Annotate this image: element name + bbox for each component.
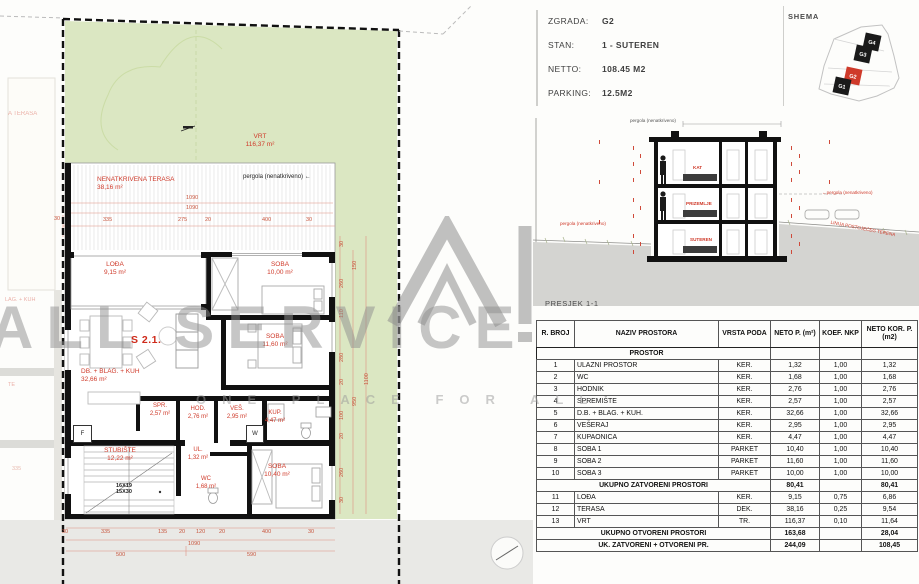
site-plan-diagram: G4 G3 G2 G1 bbox=[784, 6, 919, 110]
table-cell: 1,00 bbox=[820, 444, 862, 456]
room-name: UL. bbox=[193, 447, 202, 453]
table-cell bbox=[771, 348, 820, 360]
dim: 150 bbox=[352, 261, 358, 270]
room-label-ul: UL. 1,32 m² bbox=[178, 447, 218, 462]
table-row: 13VRTTR.116,370,1011,64 bbox=[537, 516, 918, 528]
info-row: NETTO: bbox=[548, 64, 581, 74]
neighbor-label: LAG. + KUH bbox=[5, 297, 35, 304]
subtotal-neto: 163,68 bbox=[771, 528, 820, 540]
subtotal-kor: 28,04 bbox=[862, 528, 918, 540]
table-cell: 32,66 bbox=[771, 408, 820, 420]
room-name: SOBA bbox=[268, 463, 286, 470]
table-cell: 0,10 bbox=[820, 516, 862, 528]
table-cell bbox=[820, 348, 862, 360]
table-cell: 3 bbox=[537, 384, 575, 396]
table-cell: 2,57 bbox=[771, 396, 820, 408]
table-cell: 10,00 bbox=[771, 468, 820, 480]
col-header: VRSTA PODA bbox=[719, 321, 771, 348]
dim: 30 bbox=[62, 529, 68, 535]
room-area: 38,16 m² bbox=[97, 184, 123, 191]
section-pergola-top-label: pergola (nenatkriveno) bbox=[630, 118, 676, 123]
info-label: PARKING: bbox=[548, 88, 591, 98]
appliance-washer: W bbox=[246, 425, 264, 443]
room-name: SOBA bbox=[266, 333, 284, 340]
drawing-sheet: VRT 116,37 m² NENATKRIVENA TERASA 38,16 … bbox=[0, 0, 919, 584]
room-name: DB. + BLAG. + KUH bbox=[81, 368, 140, 375]
table-cell: 1,00 bbox=[820, 384, 862, 396]
dim: 400 bbox=[262, 529, 271, 535]
table-cell: 9,15 bbox=[771, 492, 820, 504]
table-cell: 4,47 bbox=[771, 432, 820, 444]
dim: 30 bbox=[54, 216, 60, 222]
room-label-loda: LOĐA 9,15 m² bbox=[90, 261, 140, 277]
dim: 260 bbox=[339, 279, 345, 288]
table-cell: LOĐA bbox=[575, 492, 719, 504]
appliance-fridge: F bbox=[73, 425, 92, 443]
table-cell: SOBA 2 bbox=[575, 456, 719, 468]
table-cell: 2,76 bbox=[771, 384, 820, 396]
table-cell: 11,60 bbox=[862, 456, 918, 468]
table-group-label: PROSTOR bbox=[575, 348, 719, 360]
table-row: 7KUPAONICAKER.4,471,004,47 bbox=[537, 432, 918, 444]
table-cell: 12 bbox=[537, 504, 575, 516]
table-cell: KER. bbox=[719, 420, 771, 432]
table-row: 9SOBA 2PARKET11,601,0011,60 bbox=[537, 456, 918, 468]
room-area: 1,68 m² bbox=[196, 484, 216, 490]
table-cell: 6,86 bbox=[862, 492, 918, 504]
table-cell: 1,68 bbox=[771, 372, 820, 384]
stair-tread-note: 15X30 bbox=[116, 489, 132, 495]
room-label-hod: HOD. 2,76 m² bbox=[176, 406, 220, 421]
room-name: WC bbox=[201, 476, 211, 482]
section-pergola-right-label: ←pergola (nenatkriveno) bbox=[822, 190, 873, 195]
table-cell: KUPAONICA bbox=[575, 432, 719, 444]
table-cell: PARKET bbox=[719, 444, 771, 456]
table-cell: 10,40 bbox=[862, 444, 918, 456]
table-cell: 32,66 bbox=[862, 408, 918, 420]
info-value: 108.45 M2 bbox=[602, 64, 646, 74]
table-cell: KER. bbox=[719, 372, 771, 384]
table-row: 4SPREMIŠTEKER.2,571,002,57 bbox=[537, 396, 918, 408]
section-floor-suteren: SUTEREN bbox=[690, 237, 712, 242]
section-pergola-bottom-label: pergola (nenatkriveno) bbox=[560, 221, 606, 226]
info-label: ZGRADA: bbox=[548, 16, 589, 26]
info-block: ZGRADA: G2 STAN: 1 - SUTEREN NETTO: 108.… bbox=[536, 10, 778, 106]
table-cell bbox=[820, 528, 862, 540]
dim: 20 bbox=[339, 379, 345, 385]
section-caption: PRESJEK 1-1 bbox=[545, 299, 599, 308]
total-neto: 244,09 bbox=[771, 540, 820, 552]
dim: 335 bbox=[12, 466, 21, 472]
dim: 280 bbox=[339, 353, 345, 362]
room-area: 4,47 m² bbox=[265, 418, 285, 424]
room-label-stubiste: STUBIŠTE 12,22 m² bbox=[90, 447, 150, 463]
table-cell: 1,00 bbox=[820, 468, 862, 480]
table-cell: WC bbox=[575, 372, 719, 384]
room-area: 10,00 m² bbox=[267, 269, 293, 276]
table-cell: 8 bbox=[537, 444, 575, 456]
table-cell: SOBA 1 bbox=[575, 444, 719, 456]
table-cell: TERASA bbox=[575, 504, 719, 516]
table-row: 11LOĐAKER.9,150,756,86 bbox=[537, 492, 918, 504]
stair-note: 16X19 15X30 bbox=[116, 483, 132, 495]
table-cell: PARKET bbox=[719, 456, 771, 468]
room-name: KUP. bbox=[268, 410, 281, 416]
dim: 20 bbox=[339, 433, 345, 439]
room-name: SOBA bbox=[271, 261, 289, 268]
room-area: 10,40 m² bbox=[264, 471, 290, 478]
table-row: 8SOBA 1PARKET10,401,0010,40 bbox=[537, 444, 918, 456]
room-label-vrt: VRT 116,37 m² bbox=[230, 133, 290, 149]
room-area: 1,32 m² bbox=[188, 455, 208, 461]
room-name: NENATKRIVENA TERASA bbox=[97, 176, 174, 183]
dim: 950 bbox=[352, 397, 358, 406]
col-header: NETO P. (m²) bbox=[771, 321, 820, 348]
pergola-label: pergola (nenatkriveno) ← bbox=[243, 174, 311, 180]
table-cell: 10,40 bbox=[771, 444, 820, 456]
dim: 335 bbox=[101, 529, 110, 535]
table-cell: 1,32 bbox=[862, 360, 918, 372]
dim: 20 bbox=[205, 217, 211, 223]
dim: 400 bbox=[262, 217, 271, 223]
table-subtotal-row: UKUPNO ZATVORENI PROSTORI 80,41 80,41 bbox=[537, 480, 918, 492]
table-cell: 116,37 bbox=[771, 516, 820, 528]
dim: 1090 bbox=[186, 195, 198, 201]
table-cell: 1,00 bbox=[820, 360, 862, 372]
table-cell bbox=[719, 348, 771, 360]
table-cell bbox=[537, 348, 575, 360]
table-cell: 1,00 bbox=[820, 396, 862, 408]
area-table: R. BROJ NAZIV PROSTORA VRSTA PODA NETO P… bbox=[536, 320, 917, 552]
col-header: KOEF. NKP bbox=[820, 321, 862, 348]
room-area: 2,95 m² bbox=[227, 414, 247, 420]
neighbor-label: TE bbox=[8, 382, 15, 389]
table-cell: 1,00 bbox=[820, 372, 862, 384]
floor-plan-drawing bbox=[0, 0, 533, 584]
dim: 20 bbox=[179, 529, 185, 535]
table-cell bbox=[820, 540, 862, 552]
subtotal-label: UKUPNO OTVORENI PROSTORI bbox=[537, 528, 771, 540]
info-label: NETTO: bbox=[548, 64, 581, 74]
info-row: PARKING: bbox=[548, 88, 591, 98]
section-floor-prizemlje: PRIZEMLJE bbox=[686, 201, 712, 206]
table-cell: 4 bbox=[537, 396, 575, 408]
table-cell: 13 bbox=[537, 516, 575, 528]
dim: 1090 bbox=[188, 541, 200, 547]
table-cell: KER. bbox=[719, 384, 771, 396]
room-name: LOĐA bbox=[106, 261, 124, 268]
table-cell: 10,00 bbox=[862, 468, 918, 480]
table-cell: VRT bbox=[575, 516, 719, 528]
table-cell: 1,00 bbox=[820, 432, 862, 444]
unit-label: S 2.1. bbox=[131, 334, 161, 346]
room-area: 2,57 m² bbox=[150, 411, 170, 417]
table-cell: 7 bbox=[537, 432, 575, 444]
dim: 20 bbox=[219, 529, 225, 535]
table-cell: HODNIK bbox=[575, 384, 719, 396]
table-cell: 11,64 bbox=[862, 516, 918, 528]
table-group-row: PROSTOR bbox=[537, 348, 918, 360]
table-subtotal-row: UKUPNO OTVORENI PROSTORI 163,68 28,04 bbox=[537, 528, 918, 540]
dim: 500 bbox=[116, 552, 125, 558]
room-label-soba2: SOBA 11,60 m² bbox=[250, 333, 300, 349]
room-label-soba3: SOBA 10,40 m² bbox=[252, 463, 302, 479]
info-row: STAN: bbox=[548, 40, 574, 50]
room-name: HOD. bbox=[191, 406, 206, 412]
dim: 30 bbox=[308, 529, 314, 535]
info-row: ZGRADA: bbox=[548, 16, 589, 26]
table-row: 5D.B. + BLAG. + KUH.KER.32,661,0032,66 bbox=[537, 408, 918, 420]
table-cell: 2,76 bbox=[862, 384, 918, 396]
info-value: 1 - SUTEREN bbox=[602, 40, 659, 50]
room-label-wc: WC 1,68 m² bbox=[186, 476, 226, 491]
dim: 590 bbox=[247, 552, 256, 558]
dim: 1090 bbox=[186, 205, 198, 211]
subtotal-kor: 80,41 bbox=[862, 480, 918, 492]
section-floor-kat: KAT bbox=[693, 165, 702, 170]
shema-block: G4 G3 G2 G1 bbox=[783, 6, 919, 106]
table-row: 10SOBA 3PARKET10,001,0010,00 bbox=[537, 468, 918, 480]
room-area: 11,60 m² bbox=[262, 341, 287, 348]
dim: 335 bbox=[103, 217, 112, 223]
dim: 135 bbox=[158, 529, 167, 535]
table-cell: 1,68 bbox=[862, 372, 918, 384]
table-cell: 9,54 bbox=[862, 504, 918, 516]
col-header: NAZIV PROSTORA bbox=[575, 321, 719, 348]
table-row: 1ULAZNI PROSTORKER.1,321,001,32 bbox=[537, 360, 918, 372]
table-cell: ULAZNI PROSTOR bbox=[575, 360, 719, 372]
table-cell: D.B. + BLAG. + KUH. bbox=[575, 408, 719, 420]
dim: 100 bbox=[339, 411, 345, 420]
table-cell: 10 bbox=[537, 468, 575, 480]
dim: 275 bbox=[178, 217, 187, 223]
dim: 1100 bbox=[364, 373, 370, 385]
table-cell: 1,00 bbox=[820, 456, 862, 468]
table-header-row: R. BROJ NAZIV PROSTORA VRSTA PODA NETO P… bbox=[537, 321, 918, 348]
room-name: SPR. bbox=[153, 403, 167, 409]
total-kor: 108,45 bbox=[862, 540, 918, 552]
table-cell: SOBA 3 bbox=[575, 468, 719, 480]
dim: 260 bbox=[339, 468, 345, 477]
room-area: 116,37 m² bbox=[246, 141, 275, 148]
table-cell: KER. bbox=[719, 432, 771, 444]
table-cell: 9 bbox=[537, 456, 575, 468]
room-name: STUBIŠTE bbox=[104, 447, 136, 454]
table-row: 12TERASADEK.38,160,259,54 bbox=[537, 504, 918, 516]
dim: 30 bbox=[339, 241, 345, 247]
room-name: VRT bbox=[254, 133, 267, 140]
table-cell: KER. bbox=[719, 492, 771, 504]
table-cell: 2,95 bbox=[862, 420, 918, 432]
table-cell: KER. bbox=[719, 408, 771, 420]
table-cell: 1 bbox=[537, 360, 575, 372]
table-cell: 6 bbox=[537, 420, 575, 432]
table-row: 3HODNIKKER.2,761,002,76 bbox=[537, 384, 918, 396]
table-total-row: UK. ZATVORENI + OTVORENI PR. 244,09 108,… bbox=[537, 540, 918, 552]
table-cell: SPREMIŠTE bbox=[575, 396, 719, 408]
table-row: 6VEŠERAJKER.2,951,002,95 bbox=[537, 420, 918, 432]
table-cell: 1,32 bbox=[771, 360, 820, 372]
room-label-terasa: NENATKRIVENA TERASA 38,16 m² bbox=[97, 176, 174, 192]
shema-title: SHEMA bbox=[788, 12, 819, 21]
table-cell: 1,00 bbox=[820, 408, 862, 420]
table-cell bbox=[862, 348, 918, 360]
dim: 30 bbox=[306, 217, 312, 223]
info-value: 12.5M2 bbox=[602, 88, 633, 98]
table-cell: KER. bbox=[719, 396, 771, 408]
table-cell: KER. bbox=[719, 360, 771, 372]
table-cell: 1,00 bbox=[820, 420, 862, 432]
room-label-soba1: SOBA 10,00 m² bbox=[255, 261, 305, 277]
room-label-dnevni: DB. + BLAG. + KUH 32,66 m² bbox=[81, 368, 140, 384]
table-cell: 4,47 bbox=[862, 432, 918, 444]
subtotal-neto: 80,41 bbox=[771, 480, 820, 492]
info-value: G2 bbox=[602, 16, 614, 26]
room-name: VEŠ. bbox=[230, 406, 244, 412]
subtotal-label: UKUPNO ZATVORENI PROSTORI bbox=[537, 480, 771, 492]
room-area: 12,22 m² bbox=[107, 455, 133, 462]
dim: 120 bbox=[196, 529, 205, 535]
table-cell: 2 bbox=[537, 372, 575, 384]
dim: 110 bbox=[339, 309, 345, 318]
table-cell: TR. bbox=[719, 516, 771, 528]
room-area: 2,76 m² bbox=[188, 414, 208, 420]
table-cell: 2,57 bbox=[862, 396, 918, 408]
table-row: 2WCKER.1,681,001,68 bbox=[537, 372, 918, 384]
table-cell: DEK. bbox=[719, 504, 771, 516]
table-cell: 11,60 bbox=[771, 456, 820, 468]
table-cell bbox=[820, 480, 862, 492]
dim: 30 bbox=[339, 497, 345, 503]
table-cell: 2,95 bbox=[771, 420, 820, 432]
room-label-kup: KUP. 4,47 m² bbox=[253, 410, 297, 425]
table-cell: VEŠERAJ bbox=[575, 420, 719, 432]
table-cell: 11 bbox=[537, 492, 575, 504]
col-header: NETO KOR. P. (m2) bbox=[862, 321, 918, 348]
table-cell: 0,25 bbox=[820, 504, 862, 516]
info-label: STAN: bbox=[548, 40, 574, 50]
table-cell: 0,75 bbox=[820, 492, 862, 504]
neighbor-label: A TERASA bbox=[8, 111, 37, 119]
table-cell: 38,16 bbox=[771, 504, 820, 516]
room-area: 9,15 m² bbox=[104, 269, 126, 276]
section-drawing bbox=[533, 110, 919, 308]
table-cell: 5 bbox=[537, 408, 575, 420]
room-area: 32,66 m² bbox=[81, 376, 107, 383]
col-header: R. BROJ bbox=[537, 321, 575, 348]
total-label: UK. ZATVORENI + OTVORENI PR. bbox=[537, 540, 771, 552]
table-cell: PARKET bbox=[719, 468, 771, 480]
